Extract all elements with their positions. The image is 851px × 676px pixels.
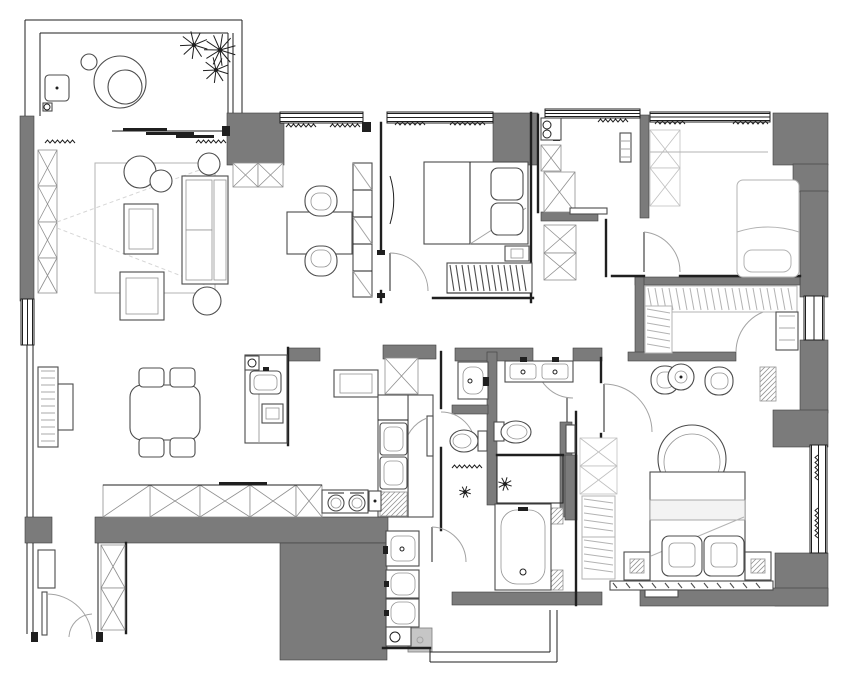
closet-shelves: [776, 312, 798, 350]
pillow: [491, 203, 523, 235]
stool-seat: [711, 373, 728, 389]
entrance-door-arc: [69, 614, 92, 637]
vanity-table-center: [680, 376, 683, 379]
dining-chair: [139, 368, 164, 387]
floor-plan-canvas: [0, 0, 851, 676]
wall: [383, 345, 436, 359]
wardrobe: [650, 168, 680, 206]
armchair-seat: [126, 278, 158, 314]
toilet-bowl-inner: [453, 434, 471, 448]
bathtub-inner: [501, 510, 545, 584]
kitchen-door-leaf: [427, 416, 433, 456]
faucet: [483, 377, 489, 386]
sliding-door-panel: [176, 135, 214, 138]
faucet: [520, 357, 527, 362]
kitchen-cabinet: [103, 485, 150, 517]
wardrobe: [580, 466, 617, 494]
bedroom1-window: [387, 112, 493, 123]
tv-cabinet: [38, 258, 57, 293]
balcony-side-table: [81, 54, 97, 70]
door-jamb: [377, 250, 385, 255]
sofa-cushion: [186, 230, 212, 280]
pillow: [491, 168, 523, 200]
wardrobe-rail: [582, 537, 615, 579]
plant: [180, 31, 207, 59]
wall: [773, 410, 828, 447]
wall: [773, 113, 828, 165]
wall: [800, 340, 828, 413]
dining-chair: [139, 438, 164, 457]
kitchen-cabinet: [150, 485, 200, 517]
door-swing-arc: [604, 384, 652, 432]
bench-shelf: [645, 590, 678, 597]
coffee-table-top: [129, 209, 153, 249]
wall: [452, 592, 602, 605]
wall-tv: [390, 176, 394, 224]
radiator-mark: [286, 124, 316, 127]
burner-inner: [331, 498, 341, 508]
pillow-inner: [711, 543, 737, 567]
wall: [95, 517, 388, 543]
closet-window: [804, 296, 824, 340]
wall: [227, 113, 284, 165]
knob: [374, 500, 377, 503]
pillow: [744, 250, 791, 272]
washer-control: [384, 581, 389, 587]
door-jamb: [96, 632, 103, 642]
refrigerator-inner: [340, 374, 372, 393]
side-table: [193, 287, 221, 315]
wall: [288, 348, 320, 361]
door-swing-arc: [644, 232, 680, 272]
wardrobe: [650, 130, 680, 168]
door-swing-arc: [736, 309, 779, 352]
sink-basin: [510, 364, 536, 379]
wardrobe: [580, 438, 617, 466]
faucet: [552, 357, 559, 362]
entrance-door-leaf: [42, 592, 47, 635]
hall-cabinet: [233, 163, 258, 187]
cabinet: [544, 172, 575, 212]
kitchen-cabinet: [250, 485, 296, 517]
bedroom2-window: [650, 112, 770, 122]
sofa-cushion: [186, 180, 212, 230]
toilet-bowl-inner: [507, 425, 527, 439]
radiator: [620, 133, 631, 162]
side-table: [198, 153, 220, 175]
shower-head-dot: [503, 482, 507, 486]
nightstand-lamp: [630, 559, 644, 573]
sofa-back: [214, 180, 226, 280]
kitchen-cabinet: [296, 485, 322, 517]
faucet: [263, 367, 269, 371]
wall: [280, 543, 387, 660]
wall: [635, 277, 644, 360]
wall: [452, 405, 488, 414]
tv-cabinet: [38, 186, 57, 222]
hall-closet: [101, 545, 125, 588]
radiator-mark: [196, 140, 226, 143]
door-jamb: [377, 293, 385, 298]
bench: [610, 581, 773, 590]
nightstand-top: [511, 249, 523, 258]
wall: [573, 348, 602, 361]
cabinet: [385, 358, 418, 394]
sideboard-top: [58, 384, 73, 430]
radiator-mark: [598, 119, 628, 122]
burner-inner: [352, 498, 362, 508]
cabinet-hatch: [380, 492, 407, 516]
tv-cabinet: [38, 150, 57, 186]
cabinet: [544, 253, 576, 280]
door-jamb: [31, 632, 38, 642]
island-corner-unit: [245, 356, 259, 370]
laundry-sink-basin: [391, 536, 415, 561]
desk-chair-seat: [311, 250, 331, 267]
desk-chair-seat: [311, 193, 331, 210]
wall: [20, 116, 34, 301]
radiator-panel: [760, 367, 776, 401]
wall: [635, 277, 800, 285]
washing-machine-door: [391, 573, 415, 595]
sliding-door-panel: [146, 132, 194, 135]
washbasin-inner: [463, 367, 483, 394]
kitchen-cabinet: [200, 485, 250, 517]
cabinet-knob: [56, 87, 59, 90]
island-hob-inner: [266, 408, 279, 419]
office-window: [280, 112, 363, 123]
hall-cabinet: [38, 550, 55, 588]
faucet: [383, 546, 388, 554]
pillow-inner: [669, 543, 695, 567]
radiator-mark: [45, 140, 75, 143]
dining-chair: [170, 368, 195, 387]
dining-chair: [170, 438, 195, 457]
closet-rail: [645, 306, 672, 353]
wall: [25, 517, 52, 543]
wall: [640, 115, 649, 218]
sideboard: [38, 367, 58, 447]
radiator-mark: [330, 124, 360, 127]
hood-mark: [219, 482, 267, 485]
hall-cabinet: [258, 163, 283, 187]
plant: [204, 34, 235, 66]
cabinet: [544, 225, 576, 253]
dining-table: [130, 385, 200, 440]
built-in-oven-inner: [384, 461, 403, 485]
cabinet: [541, 145, 561, 171]
door-swing-arc: [432, 527, 466, 562]
built-in-oven-inner: [384, 427, 403, 451]
master-window: [810, 445, 827, 553]
wardrobe-rail: [447, 263, 532, 293]
wall-shelf: [570, 208, 607, 214]
wall: [628, 352, 736, 361]
radiator-mark: [452, 465, 482, 468]
nightstand-lamp: [751, 559, 765, 573]
living-window: [21, 299, 34, 345]
sliding-door-panel: [123, 128, 167, 131]
wall: [800, 191, 828, 297]
island-sink-basin: [254, 375, 277, 390]
hanging-chair-seat: [108, 70, 142, 104]
floor-plan: [0, 0, 851, 676]
shower-head-dot: [464, 491, 467, 494]
bathtub-faucet: [518, 507, 528, 511]
wardrobe-rail: [582, 496, 615, 537]
plant: [203, 57, 228, 83]
dryer-door: [391, 602, 415, 624]
dryer-control: [384, 610, 389, 616]
door-jamb: [362, 122, 371, 132]
blanket-band: [650, 500, 745, 520]
sink-basin: [542, 364, 568, 379]
hall-closet: [101, 588, 125, 630]
wall-mirror: [566, 425, 575, 453]
toilet-tank: [478, 431, 487, 451]
small-room-window: [545, 109, 640, 118]
door-swing-arc: [390, 253, 428, 291]
side-table: [150, 170, 172, 192]
tv-cabinet: [38, 222, 57, 258]
